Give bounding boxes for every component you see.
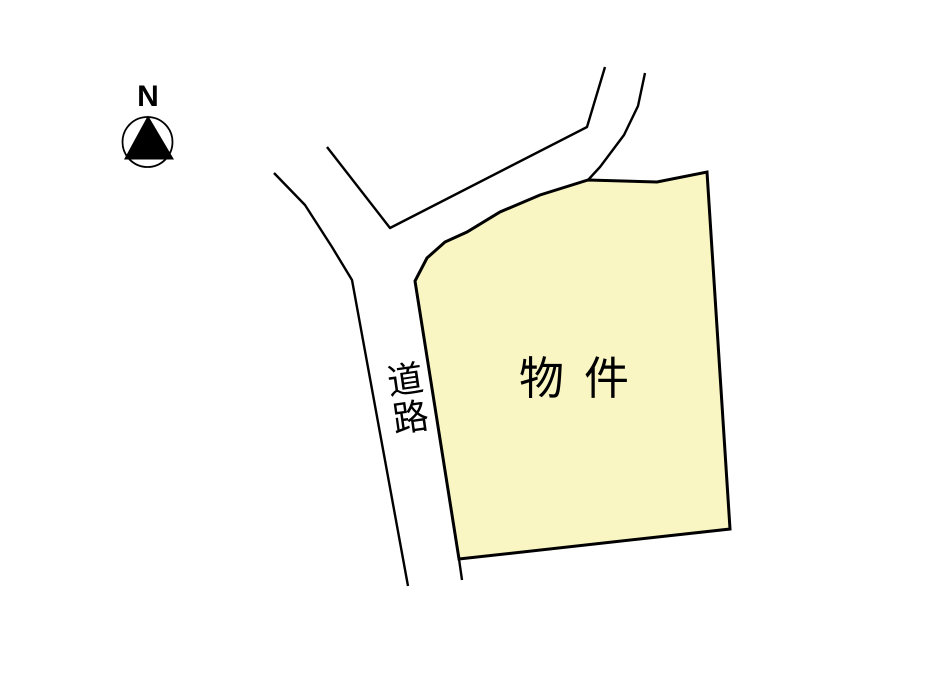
north-label: N [133,82,163,112]
north-arrow [123,116,175,168]
property-label: 物件 [519,352,649,406]
road-label: 道路 [382,359,428,439]
road-edge-lower-stub [459,559,462,580]
road-edge-northeast [588,73,645,180]
property-site-map: N 道路 物件 [0,0,947,681]
